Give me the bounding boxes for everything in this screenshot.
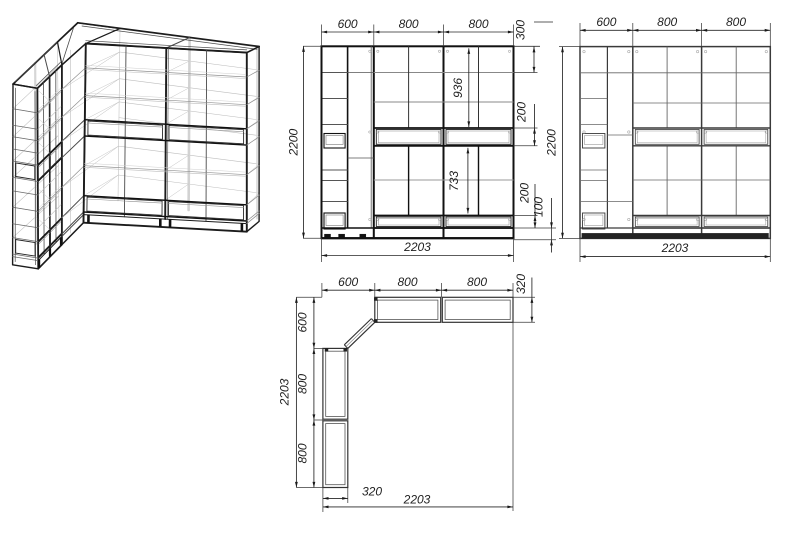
svg-text:200: 200 [518,183,532,204]
svg-text:936: 936 [451,78,465,98]
svg-text:733: 733 [447,171,461,191]
svg-text:2200: 2200 [287,129,301,157]
svg-text:800: 800 [657,15,677,29]
svg-text:2203: 2203 [661,241,689,255]
svg-text:320: 320 [514,274,528,294]
svg-text:2203: 2203 [403,240,431,254]
svg-text:600: 600 [338,17,358,31]
svg-text:800: 800 [399,17,419,31]
svg-text:600: 600 [338,275,358,289]
svg-text:300: 300 [514,20,528,40]
svg-text:800: 800 [468,17,488,31]
svg-text:2203: 2203 [403,493,431,507]
svg-text:800: 800 [467,275,487,289]
svg-text:800: 800 [296,374,310,394]
svg-text:600: 600 [596,15,616,29]
svg-text:100: 100 [532,197,546,217]
svg-text:2203: 2203 [278,378,292,406]
svg-text:2200: 2200 [545,129,559,157]
svg-text:800: 800 [397,275,417,289]
svg-text:800: 800 [726,15,746,29]
svg-text:200: 200 [515,102,529,123]
svg-text:600: 600 [296,312,310,332]
svg-text:800: 800 [296,443,310,463]
svg-text:320: 320 [362,485,382,499]
